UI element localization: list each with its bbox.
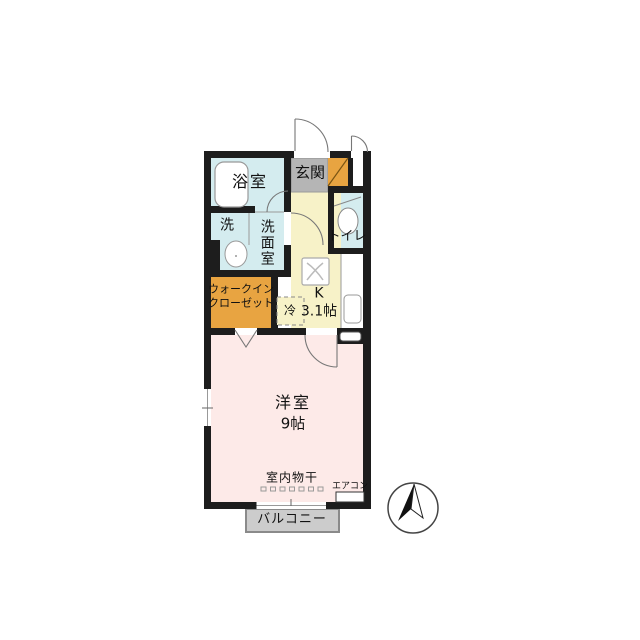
storage-door-arc <box>352 136 368 152</box>
refrigerator-label: 冷 <box>284 304 296 319</box>
kitchen-size-label: 3.1帖 <box>301 303 337 321</box>
bath-label: 浴室 <box>232 172 268 192</box>
indoor-drying-label: 室内物干 <box>266 471 318 486</box>
walk-in-closet-label: ウォークイン クローゼット <box>208 282 274 310</box>
western-room-size-label: 9帖 <box>281 415 306 434</box>
entrance-door-arc <box>295 119 328 152</box>
washroom-label: 洗面室 <box>257 219 275 267</box>
walk-in-closet-label-line1: ウォークイン <box>208 282 274 296</box>
entrance-label: 玄関 <box>295 164 325 183</box>
aircon-label: エアコン <box>332 481 368 492</box>
vanity-sink-icon <box>225 241 247 267</box>
stove-icon <box>302 258 329 285</box>
western-room-label: 洋室 <box>275 393 311 413</box>
north-arrow-icon <box>388 483 438 533</box>
floorplan-canvas: 浴室 玄関 トイレ 洗 洗面室 ウォークイン クローゼット 冷 K 3.1帖 洋… <box>0 0 640 640</box>
laundry-nook-label: 洗 <box>220 217 234 235</box>
kitchen-counter-window-icon <box>340 332 361 341</box>
toilet-label: トイレ <box>327 229 366 245</box>
utility-appliance-icon <box>344 295 361 323</box>
aircon-unit-icon <box>336 492 364 502</box>
walk-in-closet-label-line2: クローゼット <box>208 296 274 310</box>
balcony-label: バルコニー <box>257 512 327 528</box>
kitchen-label: K <box>314 285 323 303</box>
